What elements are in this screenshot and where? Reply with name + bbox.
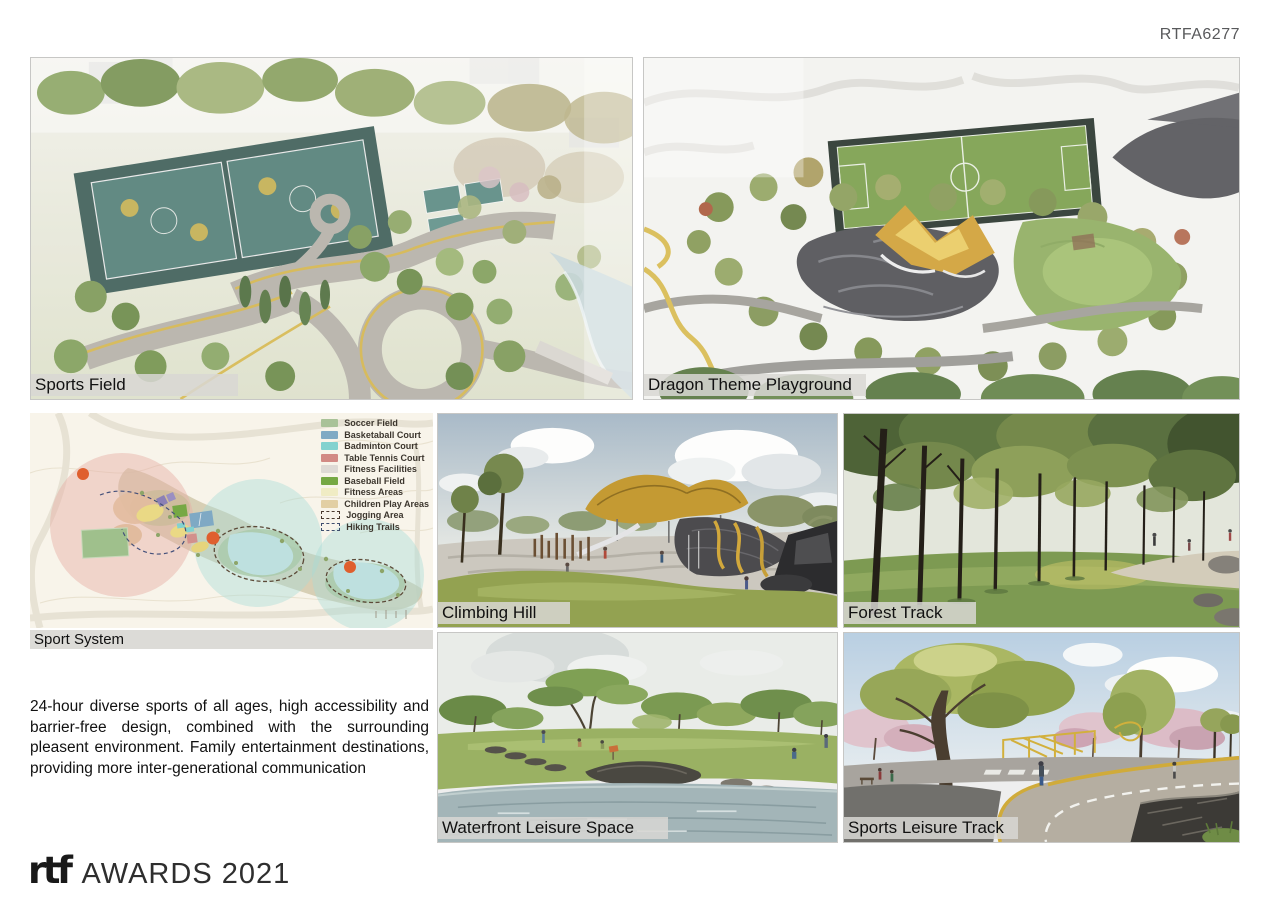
footer-logo: rtf AWARDS 2021 <box>28 852 290 889</box>
legend-item-label: Badminton Court <box>344 441 418 451</box>
legend-item: Badminton Court <box>321 441 429 452</box>
legend-swatch <box>321 419 338 427</box>
page-code: RTFA6277 <box>1160 26 1240 44</box>
panel-dragon-playground: Dragon Theme Playground <box>643 57 1240 400</box>
legend-swatch <box>321 442 338 450</box>
zone-circle-right <box>312 519 424 628</box>
legend-swatch <box>321 465 338 473</box>
photo-label-forest-track: Forest Track <box>844 602 976 624</box>
legend-swatch <box>321 523 340 531</box>
legend-item-label: Baseball Field <box>344 476 405 486</box>
description-text: 24-hour diverse sports of all ages, high… <box>30 697 429 779</box>
panel-sport-system-map: Soccer FieldBasketaball CourtBadminton C… <box>30 413 433 628</box>
legend-swatch <box>321 500 338 508</box>
photo-label-dragon-playground: Dragon Theme Playground <box>644 374 866 396</box>
sports-field-illustration <box>31 58 632 399</box>
legend-item-label: Table Tennis Court <box>344 453 424 463</box>
photo-label-sports-field: Sports Field <box>31 374 238 396</box>
climbing-hill-illustration <box>438 414 837 627</box>
legend-item: Baseball Field <box>321 476 429 487</box>
panel-leisure-track: Sports Leisure Track <box>843 632 1240 843</box>
legend-swatch <box>321 488 338 496</box>
legend-item: Hiking Trails <box>321 522 429 533</box>
map-legend: Soccer FieldBasketaball CourtBadminton C… <box>321 418 429 532</box>
dragon-playground-illustration <box>644 58 1239 399</box>
forest-track-illustration <box>844 414 1239 627</box>
photo-label-waterfront: Waterfront Leisure Space <box>438 817 668 839</box>
panel-waterfront: Waterfront Leisure Space <box>437 632 838 843</box>
legend-item: Basketaball Court <box>321 430 429 441</box>
legend-item: Soccer Field <box>321 418 429 429</box>
presentation-board: RTFA6277 <box>0 0 1273 900</box>
legend-item-label: Basketaball Court <box>344 430 421 440</box>
legend-item: Fitness Areas <box>321 487 429 498</box>
zone-circle-tabletennis <box>50 453 194 597</box>
waterfront-illustration <box>438 633 837 842</box>
panel-forest-track: Forest Track <box>843 413 1240 628</box>
section-title-sport-system: Sport System <box>30 630 433 649</box>
legend-swatch <box>321 431 338 439</box>
legend-item: Jogging Area <box>321 510 429 521</box>
legend-item-label: Fitness Areas <box>344 487 403 497</box>
legend-item-label: Jogging Area <box>346 510 403 520</box>
photo-label-climbing-hill: Climbing Hill <box>438 602 570 624</box>
legend-item-label: Hiking Trails <box>346 522 400 532</box>
awards-logo-text: AWARDS 2021 <box>82 860 291 889</box>
legend-item-label: Fitness Facilities <box>344 464 417 474</box>
legend-item-label: Soccer Field <box>344 418 398 428</box>
panel-climbing-hill: Climbing Hill <box>437 413 838 628</box>
legend-swatch <box>321 477 338 485</box>
legend-swatch <box>321 511 340 519</box>
legend-item: Table Tennis Court <box>321 453 429 464</box>
legend-item-label: Children Play Areas <box>344 499 429 509</box>
panel-sports-field: Sports Field <box>30 57 633 400</box>
rtf-logo-mark: rtf <box>28 852 70 889</box>
legend-item: Children Play Areas <box>321 499 429 510</box>
legend-swatch <box>321 454 338 462</box>
leisure-track-illustration <box>844 633 1239 842</box>
photo-label-leisure-track: Sports Leisure Track <box>844 817 1018 839</box>
legend-item: Fitness Facilities <box>321 464 429 475</box>
